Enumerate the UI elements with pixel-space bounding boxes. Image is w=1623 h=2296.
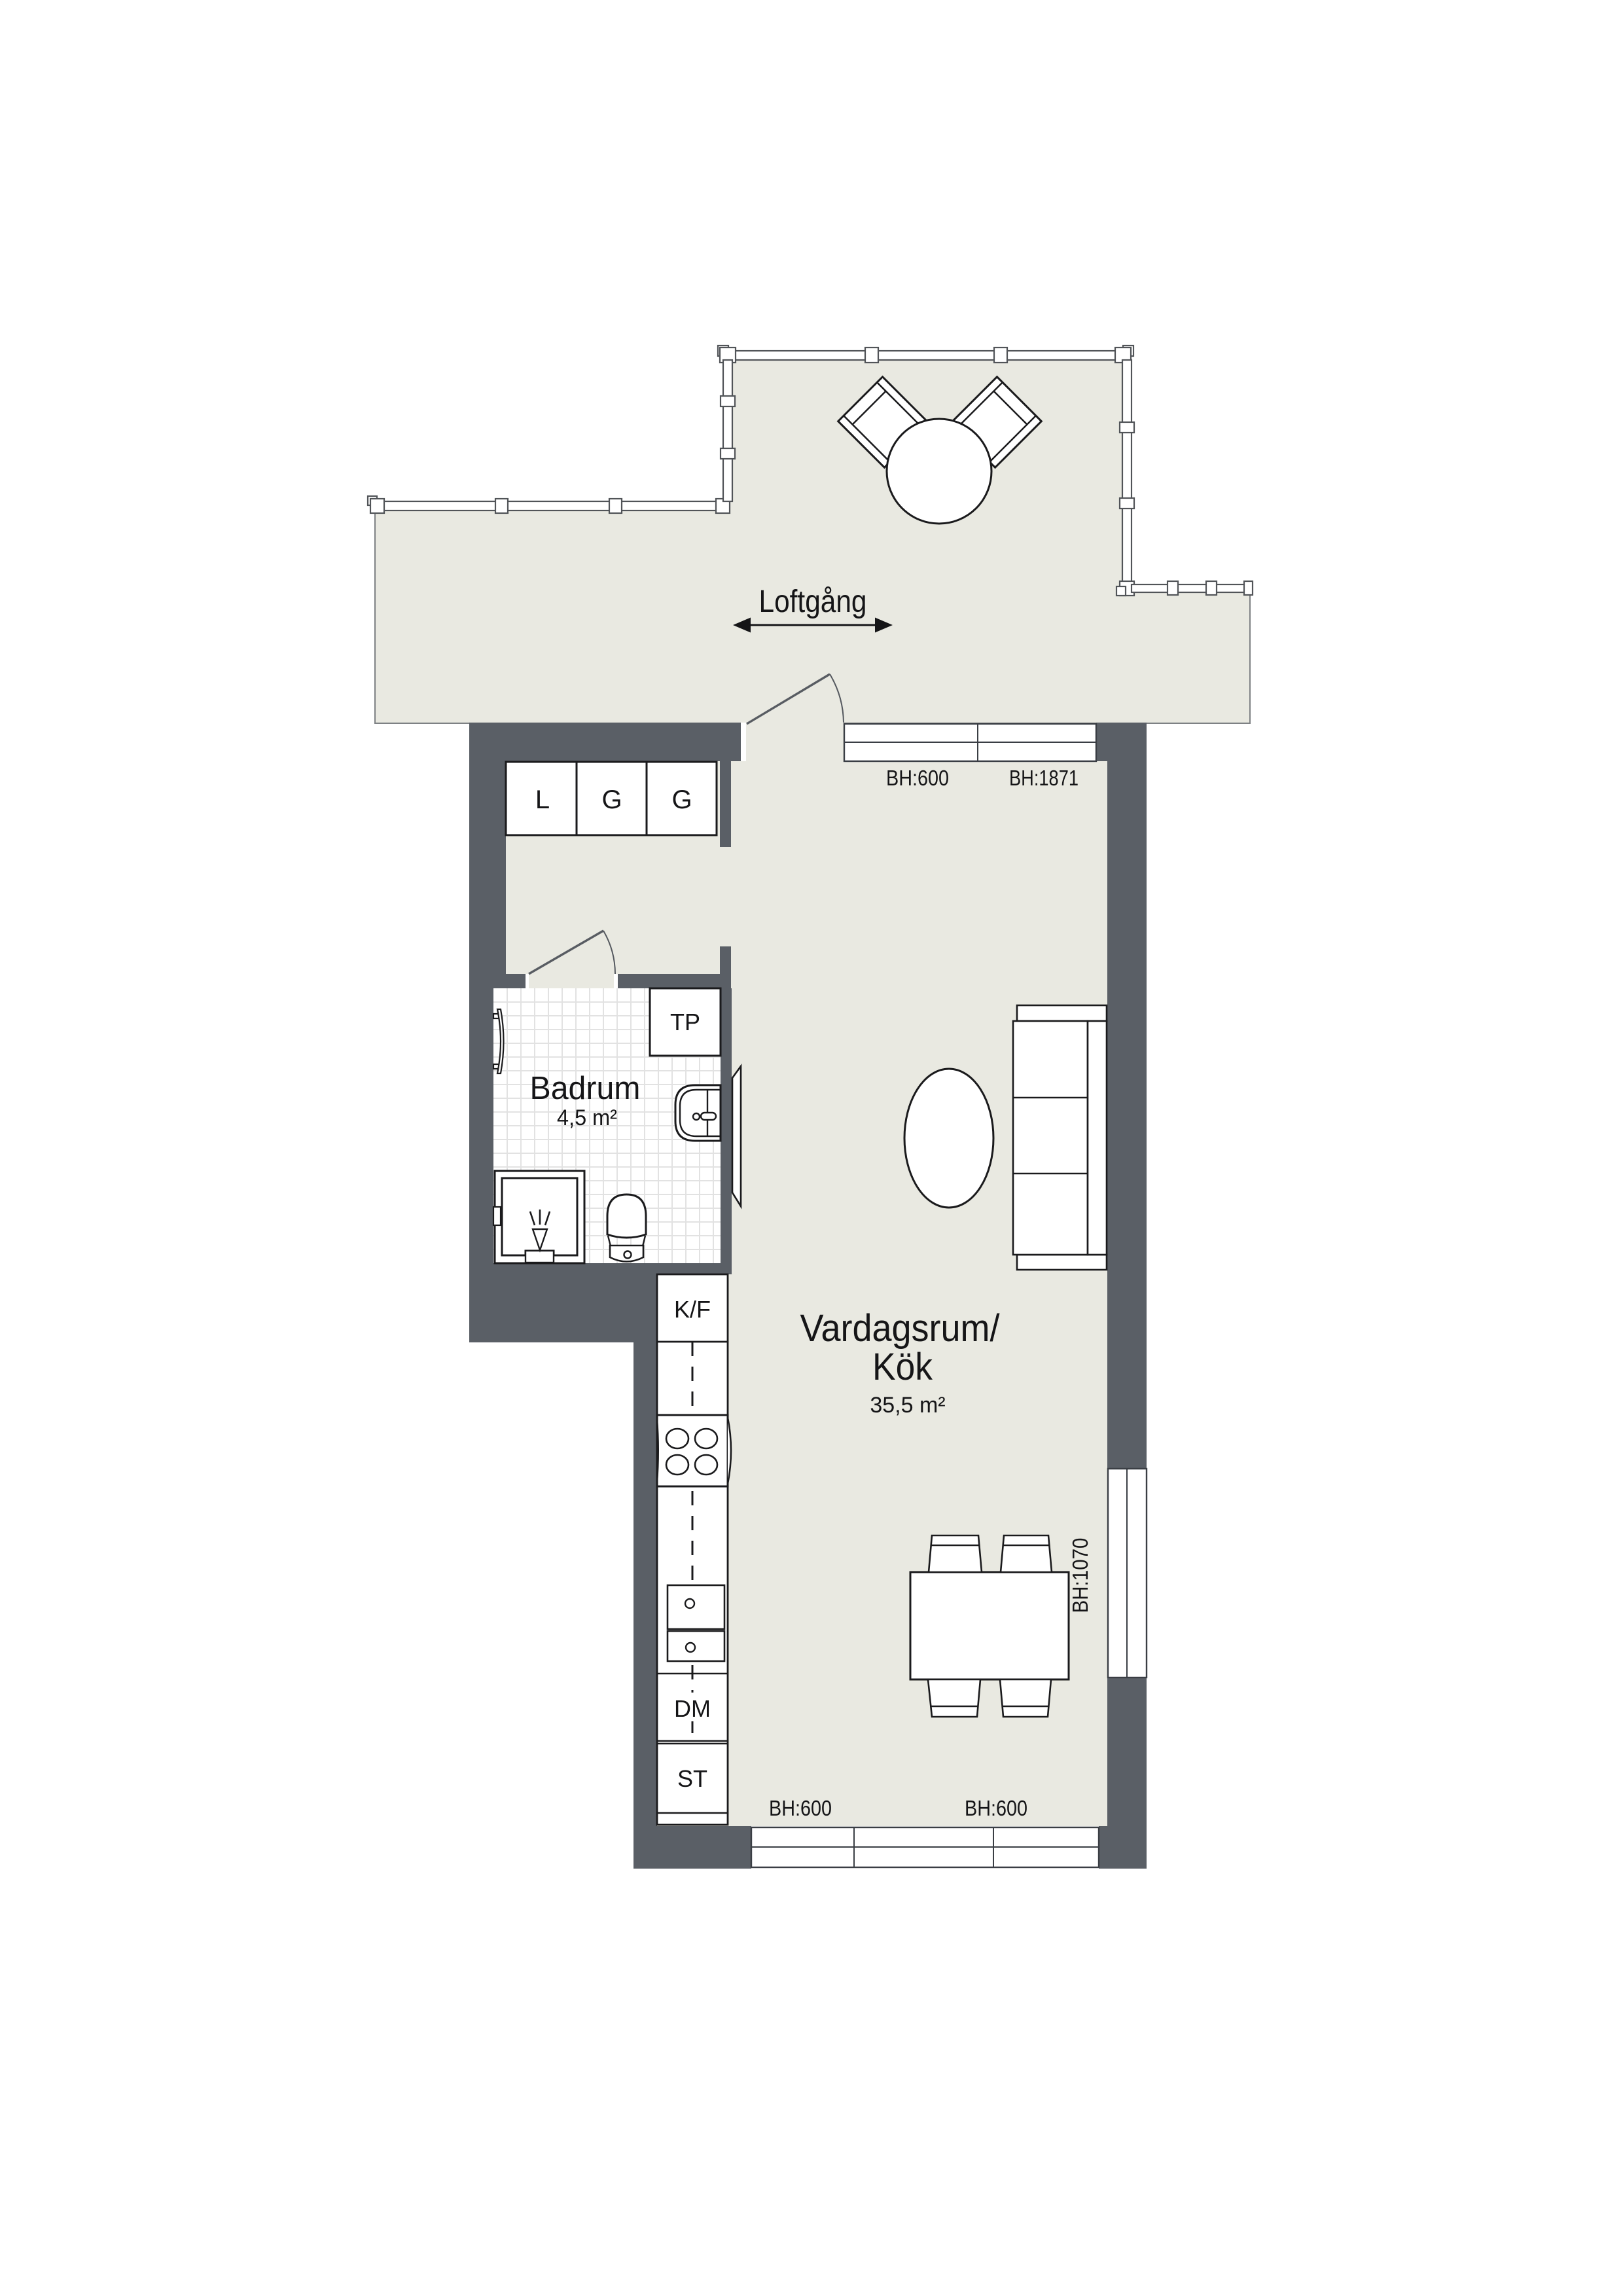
svg-text:TP: TP (670, 1009, 700, 1035)
svg-text:BH:600: BH:600 (769, 1796, 832, 1820)
svg-text:BH:600: BH:600 (965, 1796, 1027, 1820)
svg-text:G: G (601, 785, 622, 814)
svg-text:BH:1070: BH:1070 (1068, 1538, 1092, 1613)
svg-text:Kök: Kök (872, 1346, 933, 1388)
svg-text:L: L (535, 785, 550, 814)
svg-text:Vardagsrum/: Vardagsrum/ (800, 1307, 1001, 1350)
svg-text:4,5 m²: 4,5 m² (557, 1105, 617, 1130)
svg-text:Loftgång: Loftgång (759, 584, 867, 619)
svg-text:BH:1871: BH:1871 (1009, 766, 1079, 790)
svg-text:G: G (671, 785, 692, 814)
svg-text:DM: DM (674, 1695, 711, 1722)
svg-text:BH:600: BH:600 (886, 766, 949, 790)
svg-text:K/F: K/F (674, 1296, 711, 1323)
svg-text:ST: ST (677, 1765, 707, 1792)
svg-text:Badrum: Badrum (530, 1071, 641, 1106)
svg-text:35,5 m²: 35,5 m² (870, 1393, 945, 1418)
